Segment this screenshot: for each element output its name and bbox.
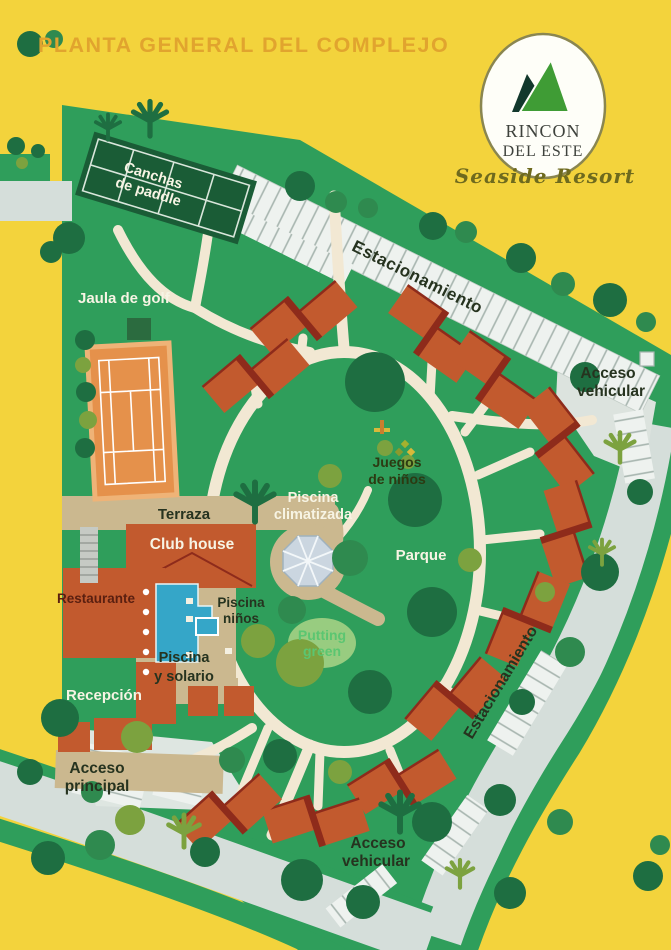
- tree: [31, 841, 65, 875]
- tree: [325, 191, 347, 213]
- tree: [458, 548, 482, 572]
- heated-pool-octagon: [283, 536, 333, 586]
- svg-text:y solario: y solario: [154, 669, 214, 685]
- tree: [75, 357, 91, 373]
- svg-text:Juegos: Juegos: [372, 454, 421, 470]
- tree: [241, 624, 275, 658]
- kids-pool-label: Piscina niños: [217, 595, 265, 626]
- tree: [115, 805, 145, 835]
- logo-name-line1: RINCON: [505, 121, 580, 141]
- tree: [547, 809, 573, 835]
- tree: [278, 596, 306, 624]
- clubhouse-label: Club house: [150, 536, 235, 553]
- tree: [219, 747, 245, 773]
- tree: [484, 784, 516, 816]
- svg-text:Acceso: Acceso: [350, 835, 405, 852]
- tree: [627, 479, 653, 505]
- resort-site-plan: PLANTA GENERAL DEL COMPLEJO RINCON DEL E…: [0, 0, 671, 950]
- svg-text:principal: principal: [65, 778, 130, 795]
- logo-tagline: Seaside Resort: [455, 164, 635, 188]
- tree: [346, 885, 380, 919]
- tree: [348, 670, 392, 714]
- tree: [407, 587, 457, 637]
- putting-green-label: Putting green: [298, 627, 346, 659]
- tree: [7, 137, 25, 155]
- tree: [328, 760, 352, 784]
- golf-cage: [127, 318, 151, 340]
- tree: [40, 241, 62, 263]
- tree: [121, 721, 153, 753]
- tree: [263, 739, 297, 773]
- shrub: [16, 157, 28, 169]
- tree: [455, 221, 477, 243]
- page-title: PLANTA GENERAL DEL COMPLEJO: [38, 33, 449, 57]
- tree: [633, 861, 663, 891]
- tennis-court: [87, 343, 177, 499]
- svg-text:vehicular: vehicular: [577, 383, 645, 400]
- tree: [345, 352, 405, 412]
- tree: [509, 689, 535, 715]
- west-road: [0, 181, 72, 221]
- golf-cage-label: Jaula de golf: [78, 290, 171, 307]
- main-access-label: Acceso principal: [65, 760, 130, 795]
- tree: [318, 464, 342, 488]
- pergola-steps: [80, 527, 98, 583]
- reception-pavilion: [224, 686, 254, 716]
- tree: [285, 171, 315, 201]
- svg-text:green: green: [303, 643, 341, 659]
- tree: [281, 859, 323, 901]
- park-label: Parque: [396, 547, 447, 564]
- logo-name-line2: DEL ESTE: [503, 143, 584, 160]
- tree: [494, 877, 526, 909]
- tree: [358, 198, 378, 218]
- tree: [506, 243, 536, 273]
- tree: [31, 144, 45, 158]
- tree: [332, 540, 368, 576]
- restaurant-label: Restaurante: [57, 591, 136, 606]
- tree: [581, 553, 619, 591]
- tree: [551, 272, 575, 296]
- tree: [75, 330, 95, 350]
- tree: [190, 837, 220, 867]
- terrace-label: Terraza: [158, 506, 211, 523]
- svg-text:Acceso: Acceso: [580, 365, 635, 382]
- reception-label: Recepción: [66, 687, 142, 704]
- vehicular-access-label-top: Acceso vehicular: [577, 365, 645, 400]
- tree: [79, 411, 97, 429]
- tree: [17, 759, 43, 785]
- svg-text:Piscina: Piscina: [159, 650, 211, 666]
- reception-pavilion: [188, 686, 218, 716]
- playground-label: Juegos de niños: [368, 454, 426, 487]
- tree: [76, 382, 96, 402]
- vehicular-access-label-bottom: Acceso vehicular: [342, 835, 410, 870]
- svg-text:climatizada: climatizada: [274, 507, 353, 523]
- restaurant-building: [63, 568, 165, 658]
- tree: [636, 312, 656, 332]
- svg-text:vehicular: vehicular: [342, 853, 410, 870]
- tree: [593, 283, 627, 317]
- tree: [75, 438, 95, 458]
- svg-text:Acceso: Acceso: [69, 760, 124, 777]
- tree: [535, 582, 555, 602]
- svg-text:Piscina: Piscina: [217, 595, 265, 610]
- tree: [555, 637, 585, 667]
- svg-text:niños: niños: [223, 611, 259, 626]
- tree: [41, 699, 79, 737]
- tree: [650, 835, 670, 855]
- gate-booth: [640, 352, 654, 366]
- svg-text:de niños: de niños: [368, 471, 426, 487]
- kids-pool: [196, 618, 218, 635]
- tree: [419, 212, 447, 240]
- svg-text:Putting: Putting: [298, 627, 346, 643]
- svg-text:Piscina: Piscina: [288, 490, 340, 506]
- tree: [85, 830, 115, 860]
